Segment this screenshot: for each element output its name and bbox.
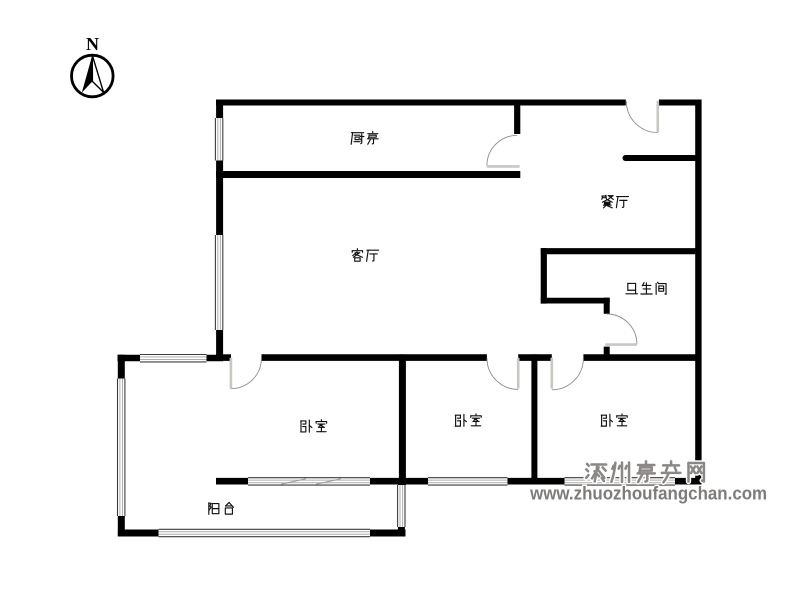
svg-text:www.zhuozhoufangchan.com: www.zhuozhoufangchan.com (529, 482, 767, 503)
svg-text:N: N (86, 34, 99, 54)
